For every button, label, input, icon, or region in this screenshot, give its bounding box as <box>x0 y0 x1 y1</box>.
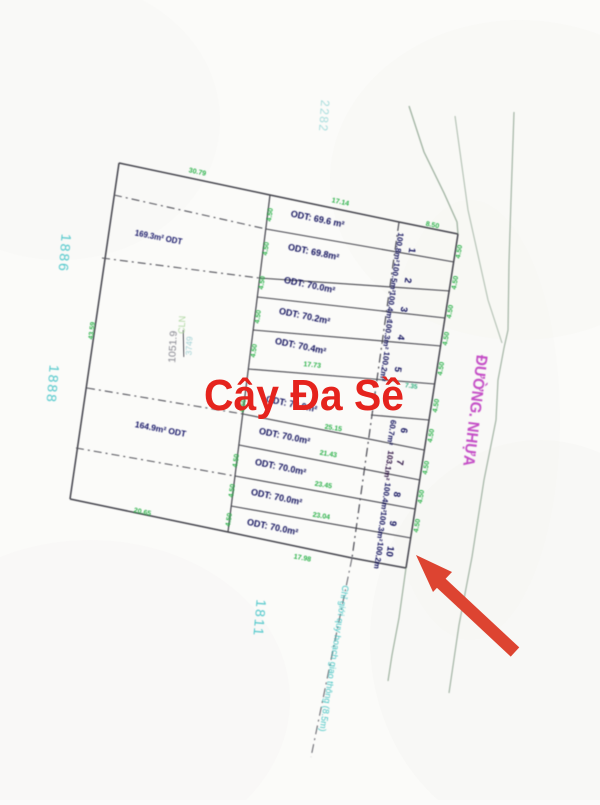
svg-text:1811: 1811 <box>250 599 269 638</box>
svg-text:CLN: CLN <box>177 316 188 335</box>
svg-text:10: 10 <box>383 545 396 557</box>
svg-text:1888: 1888 <box>43 364 62 404</box>
svg-text:3749: 3749 <box>184 336 195 356</box>
svg-text:1886: 1886 <box>55 233 74 273</box>
svg-text:2282: 2282 <box>316 99 332 133</box>
svg-text:1051.9: 1051.9 <box>166 330 180 363</box>
svg-text:Cây Đa Sề: Cây Đa Sề <box>204 371 404 420</box>
